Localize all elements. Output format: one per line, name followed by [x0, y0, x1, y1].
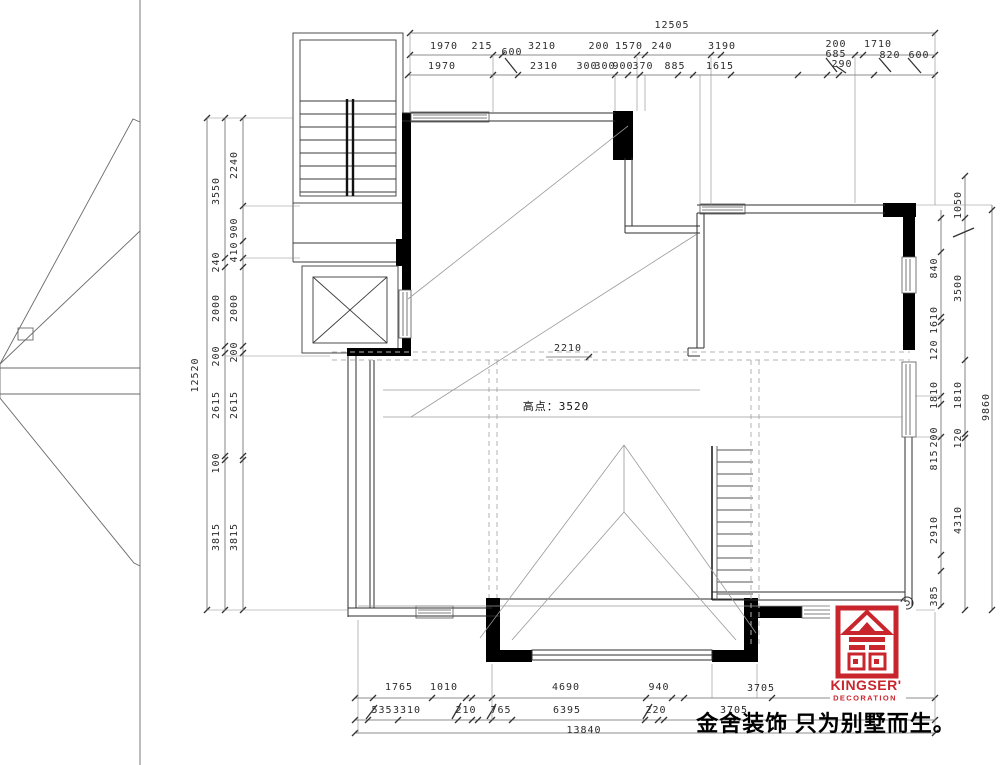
- walls-thin: [348, 113, 913, 660]
- dim-label: 1610: [930, 306, 940, 334]
- dim-label: 1010: [430, 683, 458, 693]
- dim-label: 600: [908, 51, 929, 61]
- dim-label: 820: [879, 51, 900, 61]
- dim-label: 1810: [930, 381, 940, 409]
- dim-label: 290: [831, 60, 852, 70]
- dim-label: 370: [632, 62, 653, 72]
- dim-label: 600: [501, 48, 522, 58]
- dim-label: 1710: [864, 40, 892, 50]
- dim-label: 1970: [430, 42, 458, 52]
- dim-label: 3705: [747, 684, 775, 694]
- dim-label: 6395: [553, 706, 581, 716]
- floor-plan-canvas: 12505 1970 215 3210 200 1570 240 3190 20…: [0, 0, 1000, 765]
- dim-label: 4310: [954, 506, 964, 534]
- dim-label: 3815: [212, 523, 222, 551]
- dim-label: 3190: [708, 42, 736, 52]
- dim-label: 900: [230, 217, 240, 238]
- dim-label: 2310: [530, 62, 558, 72]
- dim-label: 120: [930, 339, 940, 360]
- dim-label: 410: [230, 241, 240, 262]
- dim-label: 13840: [566, 726, 601, 736]
- dim-label: 815: [930, 449, 940, 470]
- dim-label: 1570: [615, 42, 643, 52]
- dim-label: 535: [371, 706, 392, 716]
- staircase: [293, 33, 403, 203]
- logo-brand-text: KINGSER': [830, 677, 901, 693]
- dim-label: 3550: [212, 177, 222, 205]
- dim-label: 1970: [428, 62, 456, 72]
- dim-label: 3815: [230, 523, 240, 551]
- dim-label: 1615: [706, 62, 734, 72]
- company-slogan: 金舍装饰 只为别墅而生。: [696, 706, 956, 738]
- dim-label: 240: [212, 251, 222, 272]
- dim-label: 4690: [552, 683, 580, 693]
- floor-plan-drawing: [0, 0, 1000, 765]
- dim-label: 120: [954, 427, 964, 448]
- dim-label: 215: [471, 42, 492, 52]
- dim-label: 3310: [393, 706, 421, 716]
- dim-label: 900: [612, 62, 633, 72]
- dim-label: 240: [651, 42, 672, 52]
- ladder-stair: [712, 446, 753, 600]
- dim-label: 220: [645, 706, 666, 716]
- dim-label: 2240: [230, 151, 240, 179]
- dim-label: 885: [664, 62, 685, 72]
- dim-label: 12520: [191, 357, 201, 392]
- dim-label: 840: [930, 257, 940, 278]
- dim-label: 1765: [385, 683, 413, 693]
- dim-label: 200: [212, 345, 222, 366]
- high-point-label: 高点：3520: [523, 398, 590, 414]
- dim-label: 385: [930, 585, 940, 606]
- windows: [399, 112, 916, 618]
- dim-label: 3210: [528, 42, 556, 52]
- dim-label: 1050: [954, 191, 964, 219]
- dim-label: 2000: [230, 294, 240, 322]
- dim-label: 200: [588, 42, 609, 52]
- dim-label: 210: [455, 706, 476, 716]
- dim-label: 765: [490, 706, 511, 716]
- dashed-overhang-lines: [332, 352, 910, 648]
- roof-ridge-lines: [358, 126, 903, 640]
- dim-label: 1810: [954, 381, 964, 409]
- dim-label: 2000: [212, 294, 222, 322]
- dim-label: 2615: [230, 391, 240, 419]
- dim-label: 200: [230, 341, 240, 362]
- left-roof-elevation: [0, 0, 140, 765]
- dim-label: 12505: [654, 21, 689, 31]
- dim-label: 100: [212, 452, 222, 473]
- logo-division-text: DECORATION: [833, 694, 897, 703]
- dim-label: 9860: [982, 393, 992, 421]
- dim-label: 200: [930, 426, 940, 447]
- dim-label: 940: [648, 683, 669, 693]
- ridge-dimension-label: 2210: [554, 344, 582, 354]
- dim-label: 2910: [930, 516, 940, 544]
- dim-label: 2615: [212, 391, 222, 419]
- elevator-shaft: [293, 203, 408, 353]
- dim-label: 3500: [954, 274, 964, 302]
